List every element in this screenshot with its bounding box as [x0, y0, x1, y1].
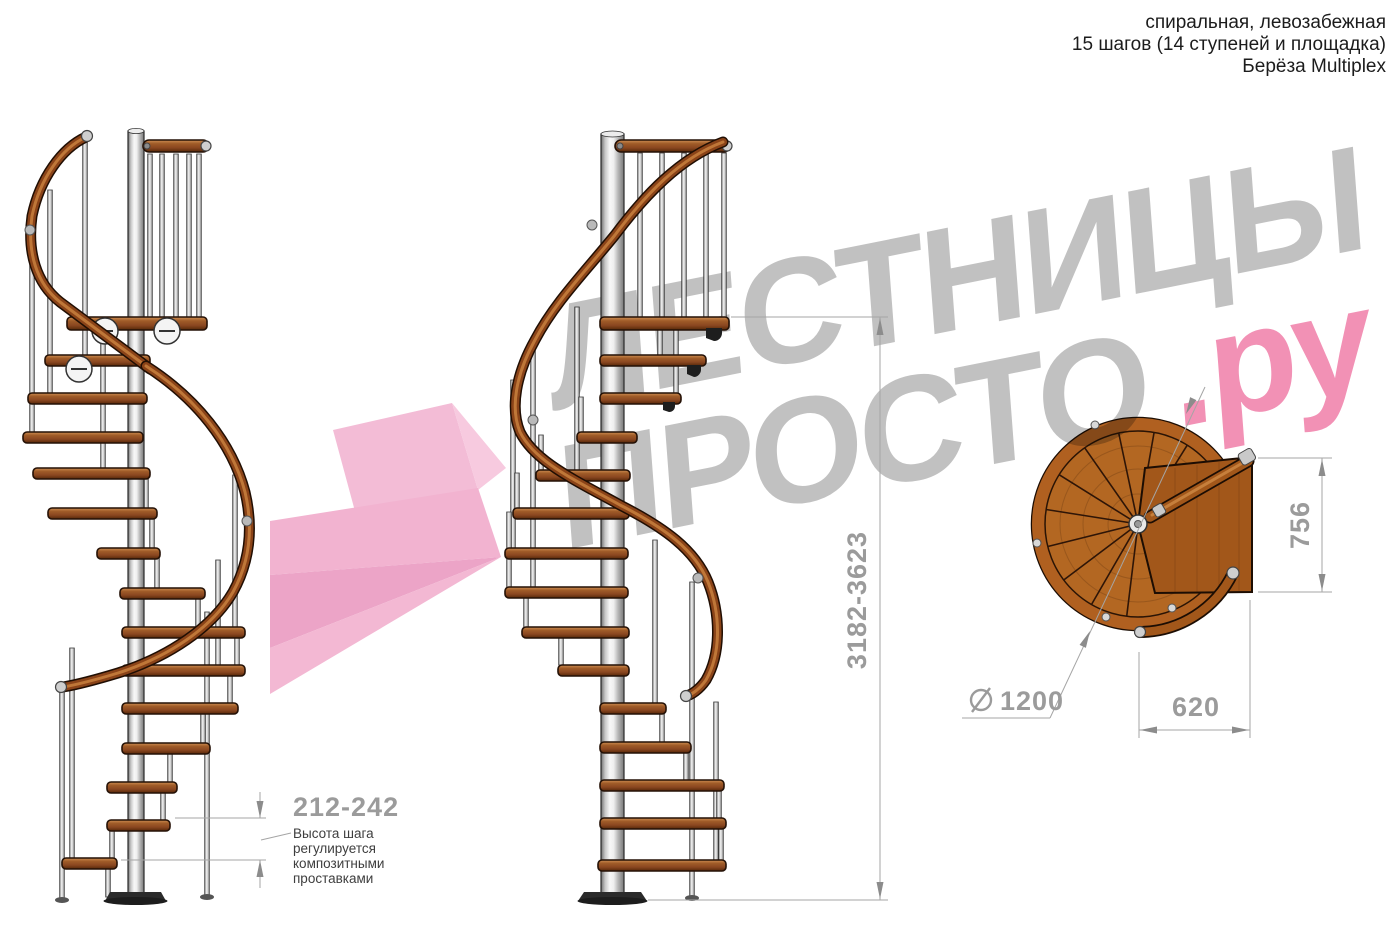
dimension-plan-depth: 620: [1139, 600, 1250, 738]
plan-width-value: 756: [1285, 501, 1315, 549]
dimension-plan-width: 756: [1258, 458, 1332, 592]
title-block: спиральная, левозабежная 15 шагов (14 ст…: [1072, 12, 1386, 78]
plan-depth-value: 620: [1172, 692, 1220, 722]
title-line-type: спиральная, левозабежная: [1072, 12, 1386, 34]
title-line-material: Берёза Multiplex: [1072, 56, 1386, 78]
step-height-note-3: композитными: [293, 856, 384, 871]
dimension-step-height: 212-242 Высота шага регулируется компози…: [121, 792, 399, 888]
step-height-note-2: регулируется: [293, 841, 376, 856]
total-height-value: 3182-3623: [842, 531, 872, 669]
dimension-diameter: 1200: [962, 387, 1205, 718]
step-height-note-4: проставками: [293, 871, 373, 886]
drawing-canvas: ЛЕСТНИЦЫ ПРОСТО.ру: [0, 0, 1400, 944]
diameter-value: 1200: [1000, 686, 1064, 716]
step-height-value: 212-242: [293, 792, 399, 822]
dimension-total-height: 3182-3623: [648, 317, 888, 900]
dimension-layer: 3182-3623 212-242 Высота шага регулирует…: [0, 0, 1400, 944]
step-height-note-1: Высота шага: [293, 826, 374, 841]
diameter-symbol: [971, 688, 991, 712]
title-line-steps: 15 шагов (14 ступеней и площадка): [1072, 34, 1386, 56]
